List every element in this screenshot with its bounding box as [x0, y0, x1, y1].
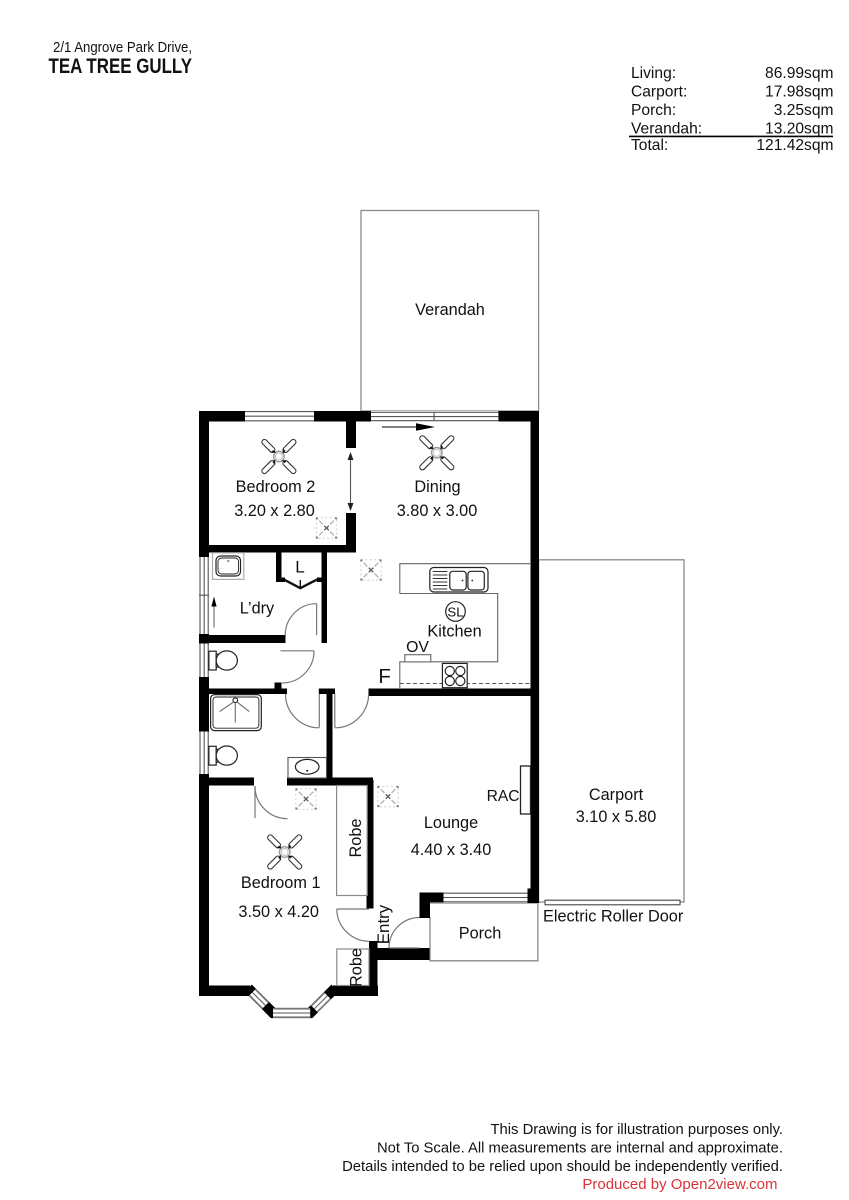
svg-text:L: L — [295, 558, 304, 577]
svg-text:17.98sqm: 17.98sqm — [765, 83, 833, 100]
svg-text:Robe: Robe — [348, 948, 366, 987]
svg-text:OV: OV — [406, 639, 429, 656]
svg-text:3.10 x 5.80: 3.10 x 5.80 — [576, 808, 657, 826]
svg-text:Robe: Robe — [347, 819, 365, 858]
svg-text:3.80 x 3.00: 3.80 x 3.00 — [397, 502, 478, 520]
svg-text:L’dry: L’dry — [240, 600, 275, 618]
svg-text:SL: SL — [447, 604, 463, 619]
svg-text:Porch: Porch — [459, 925, 502, 943]
svg-text:Not To Scale. All measurements: Not To Scale. All measurements are inter… — [377, 1141, 783, 1157]
svg-text:Kitchen: Kitchen — [427, 623, 481, 641]
svg-text:3.50 x 4.20: 3.50 x 4.20 — [238, 903, 319, 921]
svg-text:Verandah:: Verandah: — [631, 120, 702, 137]
svg-text:121.42sqm: 121.42sqm — [756, 137, 833, 154]
svg-text:Total:: Total: — [631, 137, 668, 154]
svg-text:Carport: Carport — [589, 786, 644, 804]
svg-text:Bedroom 1: Bedroom 1 — [241, 874, 321, 892]
svg-text:Verandah: Verandah — [415, 301, 485, 319]
svg-text:3.25sqm: 3.25sqm — [774, 102, 834, 119]
svg-text:Details intended to be relied: Details intended to be relied upon shoul… — [342, 1159, 783, 1175]
svg-text:Lounge: Lounge — [424, 814, 478, 832]
svg-text:RAC: RAC — [487, 788, 520, 805]
svg-text:Dining: Dining — [414, 478, 460, 496]
svg-text:Entry: Entry — [375, 904, 393, 944]
svg-text:Bedroom 2: Bedroom 2 — [236, 478, 316, 496]
svg-text:2/1 Angrove Park Drive,: 2/1 Angrove Park Drive, — [53, 40, 192, 56]
svg-text:TEA TREE GULLY: TEA TREE GULLY — [49, 55, 193, 78]
svg-text:3.20 x 2.80: 3.20 x 2.80 — [234, 502, 315, 520]
svg-text:13.20sqm: 13.20sqm — [765, 120, 833, 137]
svg-text:4.40 x 3.40: 4.40 x 3.40 — [411, 841, 492, 859]
svg-text:Produced by Open2view.com: Produced by Open2view.com — [582, 1176, 777, 1193]
svg-text:Electric Roller Door: Electric Roller Door — [543, 908, 684, 926]
svg-text:Carport:: Carport: — [631, 83, 687, 100]
svg-text:F: F — [378, 665, 391, 688]
svg-text:Porch:: Porch: — [631, 102, 676, 119]
svg-text:This Drawing is for illustrati: This Drawing is for illustration purpose… — [491, 1122, 784, 1138]
svg-text:86.99sqm: 86.99sqm — [765, 65, 833, 82]
svg-text:Living:: Living: — [631, 65, 676, 82]
